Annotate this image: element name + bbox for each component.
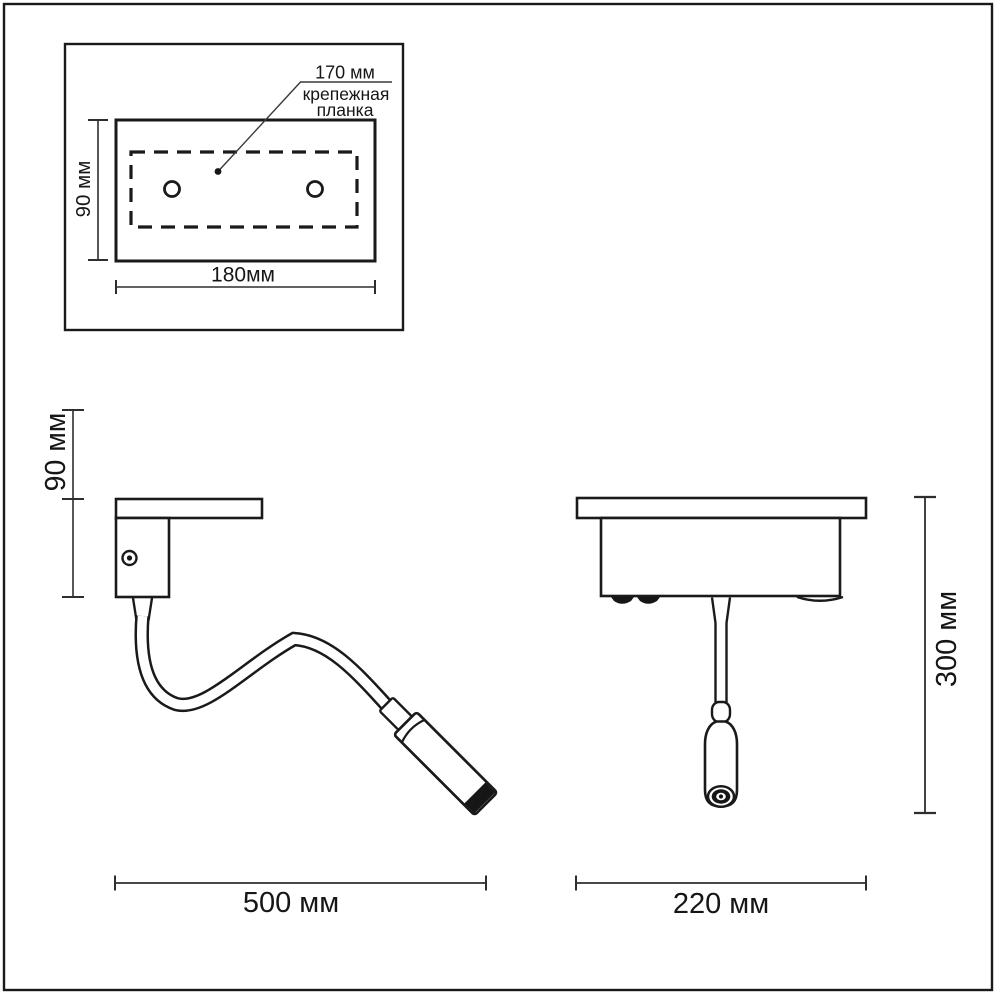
callout-dot xyxy=(215,168,222,175)
wall-box-front xyxy=(601,518,840,596)
technical-drawing-canvas: 170 мм крепежная планка 90 мм 180мм xyxy=(0,0,1000,1000)
side-height-dimension: 90 мм xyxy=(40,410,84,597)
label-side-width: 500 мм xyxy=(243,887,339,919)
stem-bead-joint xyxy=(712,702,730,722)
lamp-head-side xyxy=(375,693,497,815)
lamp-front-view: 300 мм 220 мм xyxy=(576,497,963,920)
stem-stub-left xyxy=(712,598,716,624)
box-foot-left-2 xyxy=(637,597,660,604)
inset-width-dimension: 180мм xyxy=(116,264,375,295)
technical-drawing-page: 170 мм крепежная планка 90 мм 180мм xyxy=(0,0,1000,1000)
mounting-plate-top-view: 170 мм крепежная планка 90 мм 180мм xyxy=(65,44,403,330)
screw-hole-right xyxy=(308,182,323,197)
label-hole-spacing: 170 мм xyxy=(315,63,375,83)
front-height-dimension: 300 мм xyxy=(914,497,963,813)
switch-button-dot xyxy=(127,555,132,560)
mount-stub-left-edge xyxy=(133,598,137,621)
stem-stub-right xyxy=(727,598,731,624)
top-plate-front xyxy=(577,498,866,518)
lens-center-dot xyxy=(719,794,723,798)
label-front-height: 300 мм xyxy=(931,591,963,687)
box-foot-left-1 xyxy=(611,597,634,604)
label-inset-height: 90 мм xyxy=(72,161,95,218)
mount-stub-right-edge xyxy=(149,598,153,621)
label-side-height: 90 мм xyxy=(40,413,72,492)
inset-height-dimension: 90 мм xyxy=(72,120,108,260)
label-front-width: 220 мм xyxy=(673,888,769,920)
front-width-dimension: 220 мм xyxy=(576,876,866,921)
label-inset-width: 180мм xyxy=(211,264,275,287)
top-plate-side xyxy=(116,499,262,518)
label-mounting-strip-line2: планка xyxy=(317,100,374,120)
side-width-dimension: 500 мм xyxy=(115,876,486,920)
screw-hole-left xyxy=(165,182,180,197)
lamp-side-view: 90 мм 500 мм xyxy=(40,410,497,919)
box-foot-right xyxy=(797,597,843,601)
